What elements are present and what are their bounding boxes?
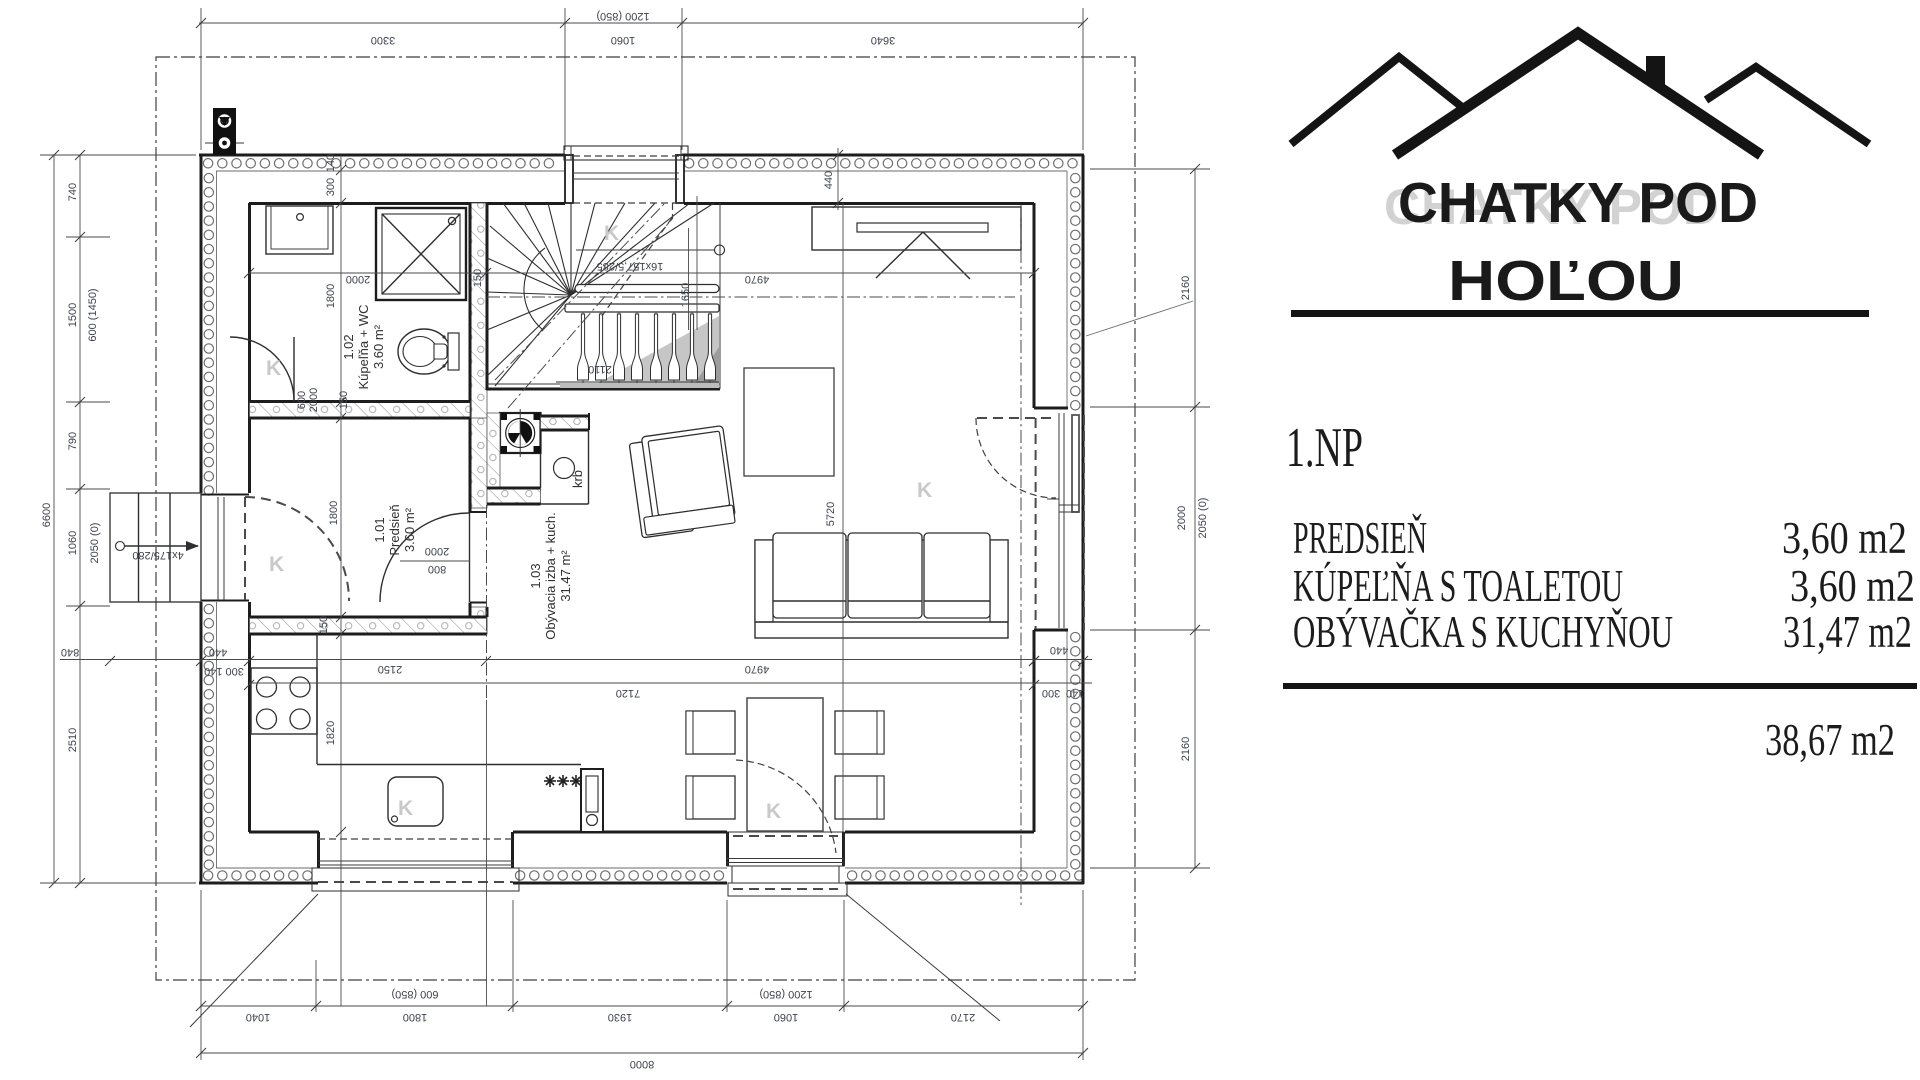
svg-text:2110: 2110 bbox=[588, 363, 612, 375]
svg-text:150: 150 bbox=[338, 391, 350, 409]
svg-text:1820: 1820 bbox=[325, 721, 337, 745]
svg-text:1200 (850): 1200 (850) bbox=[759, 988, 812, 1000]
svg-text:K: K bbox=[917, 479, 932, 502]
svg-text:7120: 7120 bbox=[616, 687, 640, 699]
svg-text:600 (1450): 600 (1450) bbox=[87, 288, 99, 341]
svg-text:6600: 6600 bbox=[41, 503, 53, 527]
svg-text:3,60 m2: 3,60 m2 bbox=[1790, 561, 1915, 611]
svg-text:38,67 m2: 38,67 m2 bbox=[1765, 715, 1895, 765]
svg-text:4970: 4970 bbox=[745, 663, 769, 675]
svg-text:1.02: 1.02 bbox=[341, 334, 356, 359]
svg-text:2160: 2160 bbox=[1180, 737, 1192, 761]
svg-text:Predsieň: Predsieň bbox=[387, 504, 402, 555]
svg-text:3.60 m²: 3.60 m² bbox=[371, 324, 386, 369]
svg-text:3640: 3640 bbox=[871, 34, 895, 46]
svg-text:1650: 1650 bbox=[680, 283, 692, 307]
svg-text:1.NP: 1.NP bbox=[1286, 417, 1363, 479]
svg-text:K: K bbox=[269, 553, 284, 576]
svg-text:440: 440 bbox=[823, 171, 835, 189]
svg-text:31,47 m2: 31,47 m2 bbox=[1783, 607, 1912, 657]
svg-text:790: 790 bbox=[67, 432, 79, 450]
svg-text:740: 740 bbox=[67, 183, 79, 201]
svg-text:150: 150 bbox=[472, 269, 484, 287]
svg-text:1.01: 1.01 bbox=[372, 517, 387, 542]
svg-text:K: K bbox=[266, 357, 281, 380]
svg-text:3.60 m²: 3.60 m² bbox=[402, 507, 417, 552]
svg-text:1060: 1060 bbox=[611, 34, 635, 46]
svg-text:600 (850): 600 (850) bbox=[391, 988, 438, 1000]
svg-text:1040: 1040 bbox=[246, 1011, 270, 1023]
svg-text:krb: krb bbox=[570, 470, 585, 488]
svg-text:2050 (0): 2050 (0) bbox=[1197, 498, 1209, 539]
svg-text:1.03: 1.03 bbox=[528, 563, 543, 588]
svg-text:140: 140 bbox=[325, 154, 337, 172]
svg-text:K: K bbox=[398, 797, 413, 820]
svg-text:2000: 2000 bbox=[308, 388, 320, 412]
svg-text:16x157,5/285: 16x157,5/285 bbox=[597, 260, 664, 272]
svg-text:3,60 m2: 3,60 m2 bbox=[1782, 513, 1907, 563]
svg-text:1930: 1930 bbox=[608, 1011, 632, 1023]
svg-text:2000: 2000 bbox=[346, 273, 370, 285]
svg-text:5720: 5720 bbox=[825, 502, 837, 526]
svg-text:300: 300 bbox=[325, 178, 337, 196]
svg-text:1800: 1800 bbox=[325, 284, 337, 308]
svg-text:1800: 1800 bbox=[403, 1011, 427, 1023]
svg-text:300: 300 bbox=[1042, 687, 1060, 699]
svg-text:Kúpeľňa + WC: Kúpeľňa + WC bbox=[356, 304, 371, 389]
svg-text:Obývacia izba + kuch.: Obývacia izba + kuch. bbox=[543, 512, 558, 640]
svg-text:1500: 1500 bbox=[67, 303, 79, 327]
svg-text:1060: 1060 bbox=[67, 531, 79, 555]
svg-text:OBÝVAČKA S KUCHYŇOU: OBÝVAČKA S KUCHYŇOU bbox=[1293, 607, 1673, 657]
svg-text:140: 140 bbox=[1066, 687, 1084, 699]
svg-text:HOĽOU: HOĽOU bbox=[1448, 249, 1684, 313]
svg-text:31.47 m²: 31.47 m² bbox=[558, 550, 573, 602]
svg-text:1060: 1060 bbox=[774, 1011, 798, 1023]
svg-text:2160: 2160 bbox=[1180, 276, 1192, 300]
svg-text:440: 440 bbox=[1050, 644, 1068, 656]
svg-text:PREDSIEŇ: PREDSIEŇ bbox=[1293, 513, 1427, 563]
svg-text:CHATKY POD: CHATKY POD bbox=[1398, 171, 1758, 235]
svg-text:8000: 8000 bbox=[630, 1058, 654, 1070]
svg-text:2170: 2170 bbox=[951, 1011, 975, 1023]
svg-text:2000: 2000 bbox=[425, 545, 449, 557]
svg-text:840: 840 bbox=[61, 646, 79, 658]
svg-text:2150: 2150 bbox=[378, 663, 402, 675]
svg-text:2000: 2000 bbox=[1176, 506, 1188, 530]
svg-text:2510: 2510 bbox=[67, 728, 79, 752]
svg-text:4x175/280: 4x175/280 bbox=[132, 549, 183, 561]
svg-text:K: K bbox=[604, 222, 619, 245]
svg-text:K: K bbox=[766, 800, 781, 823]
svg-text:150: 150 bbox=[318, 616, 330, 634]
svg-text:1800: 1800 bbox=[328, 501, 340, 525]
svg-text:600: 600 bbox=[296, 391, 308, 409]
svg-text:KÚPEĽŇA S TOALETOU: KÚPEĽŇA S TOALETOU bbox=[1293, 561, 1623, 611]
svg-text:300 140: 300 140 bbox=[204, 665, 244, 677]
svg-text:800: 800 bbox=[428, 563, 446, 575]
svg-text:440: 440 bbox=[209, 646, 227, 658]
svg-text:3300: 3300 bbox=[371, 34, 395, 46]
svg-text:4970: 4970 bbox=[745, 273, 769, 285]
svg-text:2050 (0): 2050 (0) bbox=[89, 523, 101, 564]
svg-text:1200 (850): 1200 (850) bbox=[596, 10, 649, 22]
